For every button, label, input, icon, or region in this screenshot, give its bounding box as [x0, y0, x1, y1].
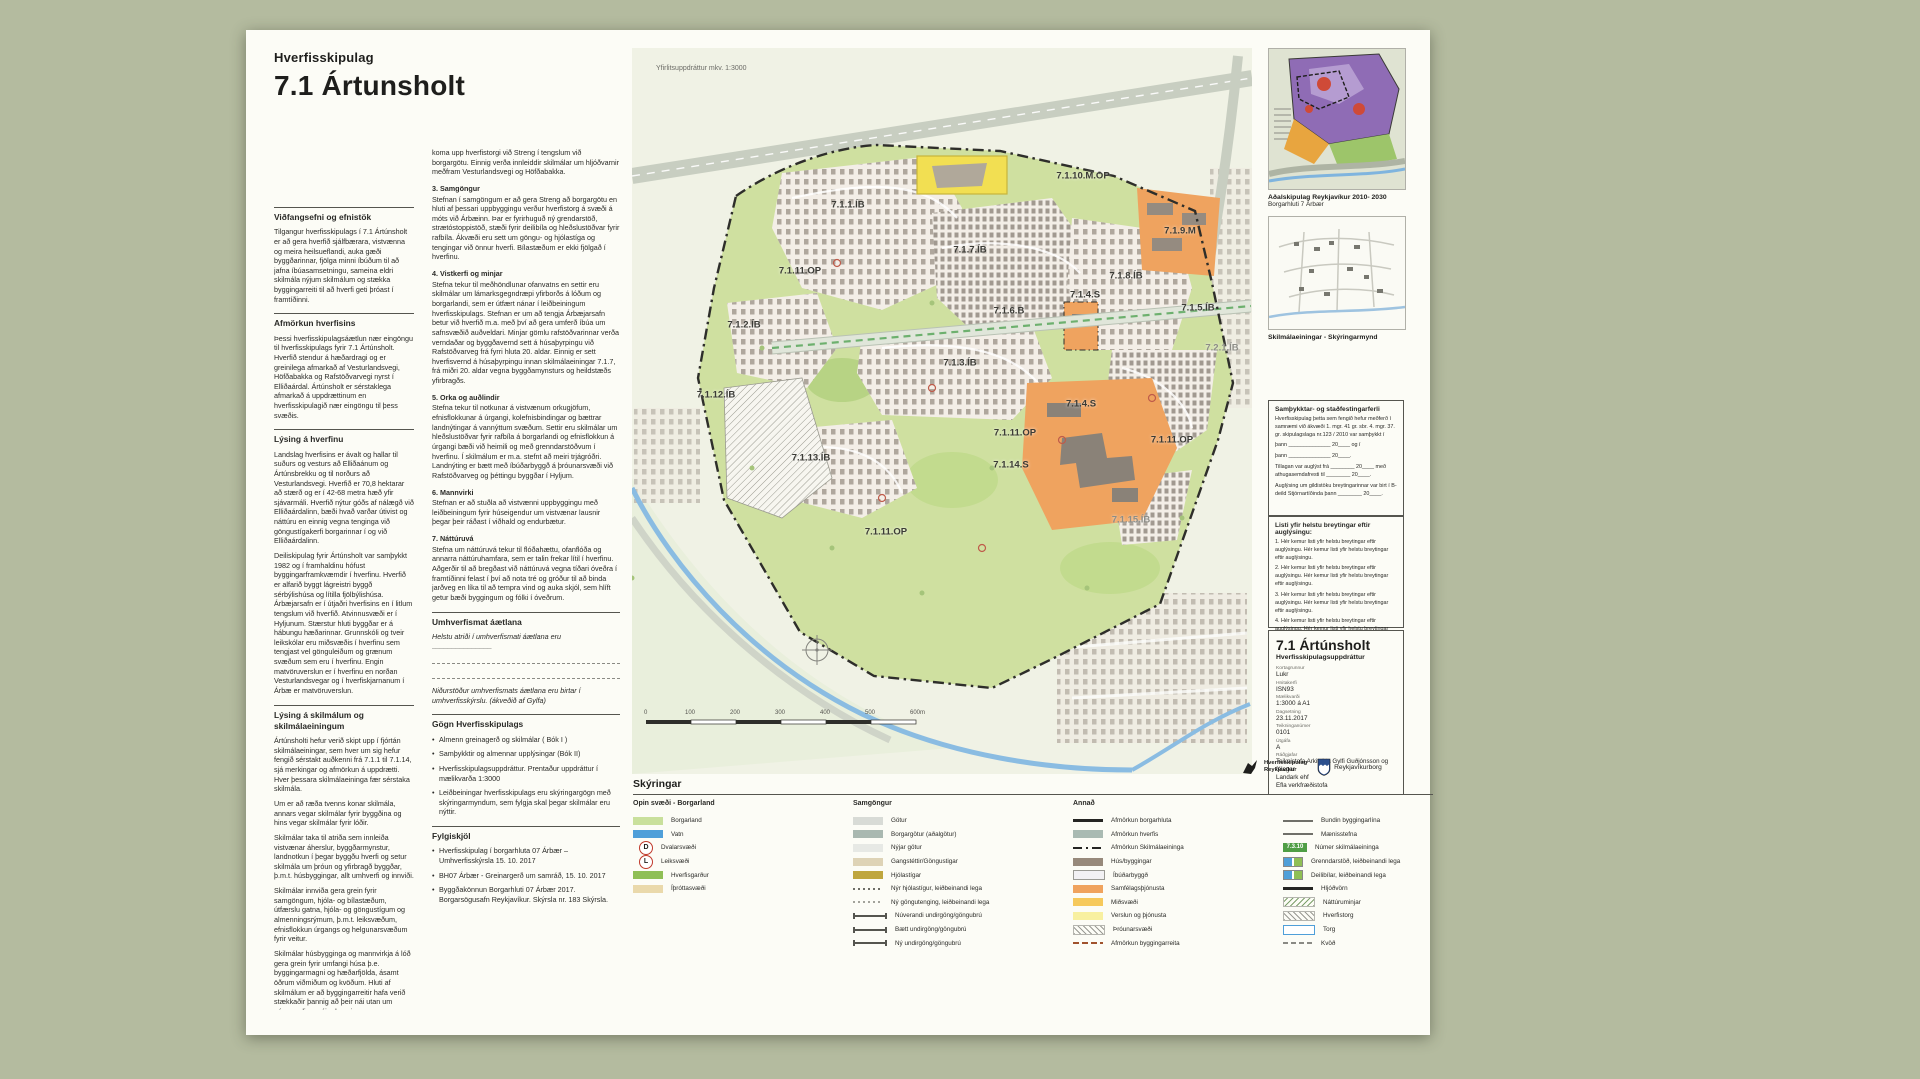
text-block: Lýsing á hverfinu	[274, 429, 414, 445]
legend: Skýringar Opin svæði - Borgarland Borgar…	[633, 778, 1433, 1008]
text-block: Leiðbeiningar hverfisskipulags eru skýri…	[432, 788, 620, 817]
titleblock-field: Dagsetning 23.11.2017	[1276, 710, 1396, 722]
legend-item: Afmörkun Skilmálaeininga	[1073, 841, 1215, 855]
legend-item: Grenndarstöð, leiðbeinandi lega	[1283, 855, 1425, 869]
titleblock-title: 7.1 Ártúnsholt	[1276, 637, 1396, 653]
zone-label: 7.1.12.ÍB	[697, 390, 736, 401]
legend-item-label: Mænisstefna	[1321, 831, 1357, 838]
legend-item-label: Miðsvæði	[1111, 899, 1138, 906]
text-block: Stefna um náttúruvá tekur til flóðahættu…	[432, 545, 620, 603]
legend-swatch	[633, 871, 663, 879]
text-block: Tilgangur hverfisskipulags í 7.1 Ártúnsh…	[274, 227, 414, 304]
legend-item: LLeiksvæði	[633, 855, 775, 869]
titleblock-field: Útgáfa A	[1276, 739, 1396, 751]
legend-item-label: Ný göngutenging, leiðbeinandi lega	[891, 899, 989, 906]
changes-box-title: Listi yfir helstu breytingar eftir auglý…	[1275, 522, 1397, 536]
zone-label: 7.1.14.S	[993, 460, 1028, 471]
legend-swatch	[853, 844, 883, 852]
legend-item-label: Torg	[1323, 926, 1335, 933]
svg-text:100: 100	[685, 710, 696, 716]
coat-of-arms-icon	[1317, 758, 1331, 776]
text-block: Gögn Hverfisskipulags	[432, 714, 620, 730]
legend-item: Hús/byggingar	[1073, 855, 1215, 869]
text-block: Lýsing á skilmálum og skilmálaeiningum	[274, 705, 414, 733]
legend-item: Miðsvæði	[1073, 896, 1215, 910]
titleblock-field-value: A	[1276, 744, 1396, 751]
legend-swatch	[1283, 820, 1313, 822]
legend-item-label: Ný undirgöng/göngubrú	[895, 940, 961, 947]
legend-item-label: Borgarland	[671, 817, 702, 824]
legend-swatch	[1073, 847, 1103, 849]
zone-label: 7.1.11.OP	[1151, 435, 1193, 446]
titleblock-field: Mælikvarði 1:3000 á A1	[1276, 695, 1396, 707]
legend-group-header: Samgöngur	[853, 800, 995, 814]
legend-item-label: Náttúruminjar	[1323, 899, 1361, 906]
legend-item: Íþróttasvæði	[633, 882, 775, 896]
legend-item-label: Grenndarstöð, leiðbeinandi lega	[1311, 858, 1400, 865]
legend-swatch	[853, 940, 887, 946]
titleblock-field: Hnitakerfi ISN93	[1276, 681, 1396, 693]
legend-item-label: Götur	[891, 817, 907, 824]
zone-label: 7.1.11.OP	[994, 428, 1036, 439]
legend-swatch	[853, 830, 883, 838]
legend-item-label: Nýjar götur	[891, 844, 922, 851]
text-block: Afmörkun hverfisins	[274, 313, 414, 329]
text-block: Viðfangsefni og efnistök	[274, 207, 414, 223]
legend-item: Götur	[853, 814, 995, 828]
legend-item: Afmörkun byggingarreita	[1073, 936, 1215, 950]
legend-item-label: Bætt undirgöng/göngubrú	[895, 926, 966, 933]
hverfisskipulag-logo: Hverfisskipulag Reykjavíkur	[1240, 757, 1307, 777]
legend-swatch	[1073, 898, 1103, 906]
legend-swatch	[1283, 833, 1313, 835]
legend-group-transport: Samgöngur GöturBorgargötur (aðalgötur)Ný…	[853, 800, 995, 950]
approval-box-line: Tillagan var auglýst frá ________ 20____…	[1275, 464, 1397, 480]
text-block: Skilmálar innviða gera grein fyrir samgö…	[274, 886, 414, 944]
reykjavikurborg-logo-text: Reykjavíkurborg	[1334, 764, 1382, 771]
raven-logo-icon	[1240, 757, 1260, 777]
minimap2-caption: Skilmálaeiningar - Skýringarmynd	[1268, 334, 1406, 341]
text-block	[432, 656, 620, 664]
legend-item-label: Nýr hjólastígur, leiðbeinandi lega	[891, 885, 982, 892]
svg-text:200: 200	[730, 710, 741, 716]
legend-item-label: Bundin byggingarlína	[1321, 817, 1380, 824]
legend-item: Torg	[1283, 923, 1425, 937]
changes-box-item: 1. Hér kemur listi yfir helstu breytinga…	[1275, 539, 1397, 562]
titleblock-field-value: 1:3000 á A1	[1276, 700, 1396, 707]
titleblock-field: Kortagrunnur Lukr	[1276, 666, 1396, 678]
titleblock-field-value: 0101	[1276, 729, 1396, 736]
text-block: Stefnan í samgöngum er að gera Streng að…	[432, 195, 620, 262]
approval-box-line: þann ______________ 20____.	[1275, 453, 1397, 461]
legend-swatch	[1283, 925, 1315, 935]
zone-label: 7.1.9.M	[1164, 226, 1196, 237]
legend-item-label: Borgargötur (aðalgötur)	[891, 831, 956, 838]
legend-item-label: Gangstéttir/Göngustigar	[891, 858, 958, 865]
legend-item: Afmörkun hverfis	[1073, 828, 1215, 842]
legend-item: Mænisstefna	[1283, 828, 1425, 842]
minimap1-caption-bold: Aðalskipulag Reykjavíkur 2010- 2030	[1268, 194, 1406, 201]
legend-item: Kvöð	[1283, 936, 1425, 950]
legend-item: Borgarland	[633, 814, 775, 828]
text-block: Helstu atriði í umhverfismati áætlana er…	[432, 632, 620, 651]
text-block: Landslag hverfisins er ávalt og hallar t…	[274, 450, 414, 546]
legend-swatch	[853, 927, 887, 933]
legend-item-label: Þróunarsvæði	[1113, 926, 1152, 933]
legend-swatch	[1073, 870, 1105, 880]
plan-sheet: Hverfisskipulag 7.1 Ártunsholt Viðfangse…	[246, 30, 1430, 1035]
legend-item-label: Afmörkun hverfis	[1111, 831, 1158, 838]
legend-item: Verslun og þjónusta	[1073, 909, 1215, 923]
svg-text:600m: 600m	[910, 710, 925, 716]
zone-label: 7.1.2.ÍB	[727, 320, 760, 331]
sports-field	[917, 156, 1007, 194]
legend-swatch	[1283, 911, 1315, 921]
legend-item: Samfélagsþjónusta	[1073, 882, 1215, 896]
legend-group-header: Annað	[1073, 800, 1215, 814]
legend-item: 7.3.10Númer skilmálaeininga	[1283, 841, 1425, 855]
legend-item-label: Dvalarsvæði	[661, 844, 696, 851]
text-block: Hverfisskipulag í borgarhluta 07 Árbær –…	[432, 846, 620, 865]
legend-swatch	[853, 871, 883, 879]
legend-item-label: Afmörkun Skilmálaeininga	[1111, 844, 1184, 851]
text-block: 6. Mannvirki	[432, 488, 620, 498]
changes-box-item: 3. Hér kemur listi yfir helstu breytinga…	[1275, 592, 1397, 615]
legend-item: Afmörkun borgarhluta	[1073, 814, 1215, 828]
zone-label: 7.1.6.B	[994, 306, 1025, 317]
text-block: Samþykktir og almennar upplýsingar (Bók …	[432, 749, 620, 759]
approval-box-line: Auglýsing um gildistöku breytingarinnar …	[1275, 483, 1397, 499]
text-block	[432, 671, 620, 679]
zone-label: 7.1.13.ÍB	[792, 453, 831, 464]
legend-item-label: Leiksvæði	[661, 858, 689, 865]
legend-swatch	[1073, 925, 1105, 935]
legend-item-label: Hverfisgarður	[671, 872, 709, 879]
legend-swatch	[1283, 887, 1313, 890]
legend-swatch	[1073, 830, 1103, 838]
legend-swatch	[1073, 819, 1103, 822]
text-block: Deiliskipulag fyrir Ártúnsholt var samþy…	[274, 551, 414, 696]
titleblock-field-value: Lukr	[1276, 671, 1396, 678]
diagram-map-skilmalaeiningar	[1268, 216, 1406, 330]
zone-label: 7.1.15.ÍB	[1112, 515, 1151, 526]
text-column-1: Viðfangsefni og efnistökTilgangur hverfi…	[274, 198, 414, 1010]
text-block: Umhverfismat áætlana	[432, 612, 620, 628]
legend-item: Þróunarsvæði	[1073, 923, 1215, 937]
advisor-line: Efla verkfræðistofa	[1276, 782, 1396, 790]
legend-item-label: Íbúðarbyggð	[1113, 872, 1148, 879]
text-block: Stefna tekur til meðhöndlunar ofanvatns …	[432, 280, 620, 386]
document-kicker: Hverfisskipulag	[274, 50, 374, 65]
text-block: Stefnan er að stuðla að vistvænni uppbyg…	[432, 498, 620, 527]
legend-item-label: Hús/byggingar	[1111, 858, 1152, 865]
legend-item-label: Afmörkun borgarhluta	[1111, 817, 1172, 824]
zone-label: 7.1.1.ÍB	[831, 200, 864, 211]
text-block: Skilmálar taka til atriða sem innleiða v…	[274, 833, 414, 881]
zone-label: 7.1.4.S	[1066, 399, 1096, 410]
legend-swatch	[1073, 942, 1103, 944]
legend-swatch	[1283, 857, 1303, 867]
zone-label: 7.1.8.ÍB	[1109, 271, 1142, 282]
legend-item: Núverandi undirgöng/göngubrú	[853, 909, 995, 923]
text-block: 3. Samgöngur	[432, 184, 620, 194]
text-block: Um er að ræða tvenns konar skilmála, ann…	[274, 799, 414, 828]
legend-item-label: Núverandi undirgöng/göngubrú	[895, 912, 982, 919]
legend-group-other: Annað Afmörkun borgarhlutaAfmörkun hverf…	[1073, 800, 1215, 950]
legend-item: Deilibílar, leiðbeinandi lega	[1283, 868, 1425, 882]
titleblock-field: Teikninganúmer 0101	[1276, 724, 1396, 736]
legend-item-label: Hljóðvörn	[1321, 885, 1348, 892]
legend-item: Hjólastígar	[853, 868, 995, 882]
text-block: BH07 Árbær - Greinargerð um samráð, 15. …	[432, 871, 620, 881]
zone-label: 7.1.4.S	[1070, 290, 1100, 301]
approval-box-line: Hverfisskipulag þetta sem fengið hefur m…	[1275, 416, 1397, 439]
legend-swatch	[1073, 912, 1103, 920]
outside-houses-west	[634, 408, 700, 503]
zone-label: 7.1.11.OP	[865, 527, 907, 538]
legend-swatch	[853, 858, 883, 866]
text-column-2: koma upp hverfistorgi við Streng í tengs…	[432, 148, 620, 1010]
text-block: Fylgiskjöl	[432, 826, 620, 842]
legend-group-open-areas: Opin svæði - Borgarland BorgarlandVatnDD…	[633, 800, 775, 896]
legend-swatch	[633, 885, 663, 893]
approval-box-title: Samþykktar- og staðfestingarferli	[1275, 406, 1397, 413]
titleblock-subtitle: Hverfisskipulagsuppdráttur	[1276, 654, 1396, 661]
legend-item: Borgargötur (aðalgötur)	[853, 828, 995, 842]
legend-item: Ný göngutenging, leiðbeinandi lega	[853, 896, 995, 910]
legend-swatch	[1073, 858, 1103, 866]
reykjavikurborg-logo: Reykjavíkurborg	[1317, 758, 1382, 776]
text-block: Skilmálar húsbygginga og mannvirkja á ló…	[274, 949, 414, 1010]
legend-swatch	[853, 901, 883, 903]
text-block: 5. Orka og auðlindir	[432, 393, 620, 403]
minimap1-caption: Borgarhluti 7 Árbær	[1268, 201, 1406, 208]
map-corner-note: Yfirlitsuppdráttur mkv. 1:3000	[656, 65, 747, 72]
legend-swatch	[633, 830, 663, 838]
legend-item-label: Samfélagsþjónusta	[1111, 885, 1165, 892]
footer-logos: Hverfisskipulag Reykjavíkur Reykjavíkurb…	[1240, 754, 1406, 780]
hverfisskipulag-logo-text: Hverfisskipulag Reykjavíkur	[1264, 760, 1307, 773]
legend-group-symbols: Bundin byggingarlínaMænisstefna7.3.10Núm…	[1283, 800, 1425, 950]
legend-group-header: Opin svæði - Borgarland	[633, 800, 775, 814]
svg-text:500: 500	[865, 710, 876, 716]
changes-box-item: 2. Hér kemur listi yfir helstu breytinga…	[1275, 565, 1397, 588]
text-block: Byggðakönnun Borgarhluti 07 Árbær 2017. …	[432, 885, 620, 904]
legend-item-label: Verslun og þjónusta	[1111, 912, 1166, 919]
text-block: 4. Vistkerfi og minjar	[432, 269, 620, 279]
approval-box-line: þann ______________ 20____ og í	[1275, 442, 1397, 450]
page-title: 7.1 Ártunsholt	[274, 70, 465, 102]
zone-label: 7.1.3.ÍB	[943, 358, 976, 369]
legend-swatch	[1283, 942, 1313, 944]
legend-item: Nýjar götur	[853, 841, 995, 855]
text-block: Niðurstöður umhverfismats áætlana eru bi…	[432, 686, 620, 705]
legend-item: Náttúruminjar	[1283, 896, 1425, 910]
legend-item: DDvalarsvæði	[633, 841, 775, 855]
legend-swatch	[853, 888, 883, 890]
legend-item: Bundin byggingarlína	[1283, 814, 1425, 828]
legend-item-label: Kvöð	[1321, 940, 1335, 947]
legend-item-label: Númer skilmálaeininga	[1315, 844, 1379, 851]
legend-item: Hljóðvörn	[1283, 882, 1425, 896]
legend-item-label: Hjólastígar	[891, 872, 921, 879]
legend-item: Hverfisgarður	[633, 868, 775, 882]
legend-swatch: L	[639, 855, 653, 869]
text-block: 7. Náttúruvá	[432, 534, 620, 544]
text-block: Þessi hverfisskipulagsáætlun nær eingöng…	[274, 334, 414, 421]
legend-item-label: Deilibílar, leiðbeinandi lega	[1311, 872, 1386, 879]
sidebar: Aðalskipulag Reykjavíkur 2010- 2030 Borg…	[1268, 48, 1406, 792]
legend-swatch	[853, 913, 887, 919]
legend-swatch: D	[639, 841, 653, 855]
legend-group-header	[1283, 800, 1425, 814]
legend-item: Bætt undirgöng/göngubrú	[853, 923, 995, 937]
titleblock-field-value: 23.11.2017	[1276, 715, 1396, 722]
legend-item-label: Vatn	[671, 831, 684, 838]
zone-label: 7.1.11.OP	[779, 266, 821, 277]
legend-item: Ný undirgöng/göngubrú	[853, 936, 995, 950]
approval-process-box: Samþykktar- og staðfestingarferli Hverfi…	[1268, 400, 1404, 516]
text-block: Stefna tekur til notkunar á vistvænum or…	[432, 403, 620, 480]
scale-bar	[646, 720, 916, 724]
overview-map-adalskipulag	[1268, 48, 1406, 190]
text-block: Almenn greinagerð og skilmálar ( Bók I )	[432, 735, 620, 745]
legend-item: Gangstéttir/Göngustigar	[853, 855, 995, 869]
svg-text:300: 300	[775, 710, 786, 716]
zone-label: 7.1.5.ÍB	[1181, 303, 1214, 314]
text-block: koma upp hverfistorgi við Streng í tengs…	[432, 148, 620, 177]
zone-label: 7.2.1.ÍB	[1205, 343, 1238, 354]
legend-item: Vatn	[633, 828, 775, 842]
zone-label: 7.1.7.ÍB	[953, 245, 986, 256]
legend-swatch	[1283, 897, 1315, 907]
legend-item: Íbúðarbyggð	[1073, 868, 1215, 882]
legend-item-label: Hverfistorg	[1323, 912, 1353, 919]
changes-list-box: Listi yfir helstu breytingar eftir auglý…	[1268, 516, 1404, 628]
titleblock-field-value: ISN93	[1276, 686, 1396, 693]
svg-text:400: 400	[820, 710, 831, 716]
legend-item: Nýr hjólastígur, leiðbeinandi lega	[853, 882, 995, 896]
legend-item-label: Afmörkun byggingarreita	[1111, 940, 1180, 947]
main-plan-map: Yfirlitsuppdráttur mkv. 1:3000 0 100 200…	[632, 48, 1252, 774]
legend-swatch	[853, 817, 883, 825]
legend-item: Hverfistorg	[1283, 909, 1425, 923]
legend-swatch	[1073, 885, 1103, 893]
text-block: Ártúnsholti hefur verið skipt upp í fjór…	[274, 736, 414, 794]
legend-swatch	[1283, 870, 1303, 880]
legend-item-label: Íþróttasvæði	[671, 885, 706, 892]
legend-swatch	[633, 817, 663, 825]
plan-map-artwork: Yfirlitsuppdráttur mkv. 1:3000 0 100 200…	[632, 48, 1252, 774]
screenshot-canvas: Hverfisskipulag 7.1 Ártunsholt Viðfangse…	[0, 0, 1920, 1079]
zone-label: 7.1.10.M.OP	[1056, 171, 1109, 182]
text-block: Hverfisskipulagsuppdráttur. Prentaður up…	[432, 764, 620, 783]
legend-swatch: 7.3.10	[1283, 843, 1307, 852]
